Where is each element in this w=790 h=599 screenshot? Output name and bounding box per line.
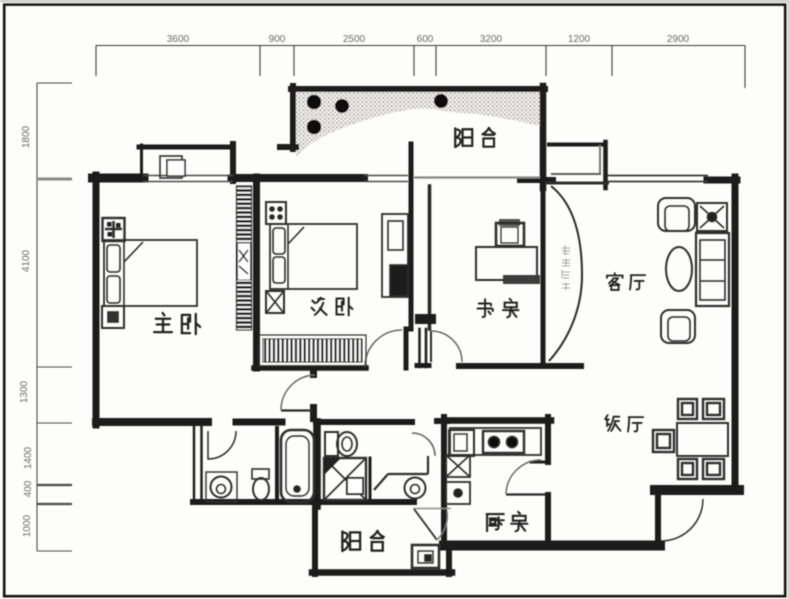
- svg-text:2500: 2500: [343, 34, 366, 45]
- svg-text:900: 900: [269, 34, 286, 45]
- svg-text:1300: 1300: [19, 380, 30, 403]
- svg-text:4100: 4100: [21, 249, 32, 272]
- svg-text:600: 600: [417, 34, 434, 45]
- svg-text:3600: 3600: [167, 34, 190, 45]
- svg-text:1000: 1000: [22, 514, 33, 537]
- svg-text:3200: 3200: [480, 34, 503, 45]
- svg-text:400: 400: [23, 480, 34, 497]
- svg-text:1200: 1200: [568, 34, 591, 45]
- svg-text:1400: 1400: [23, 446, 34, 469]
- svg-text:1800: 1800: [21, 125, 32, 148]
- svg-text:2900: 2900: [667, 34, 690, 45]
